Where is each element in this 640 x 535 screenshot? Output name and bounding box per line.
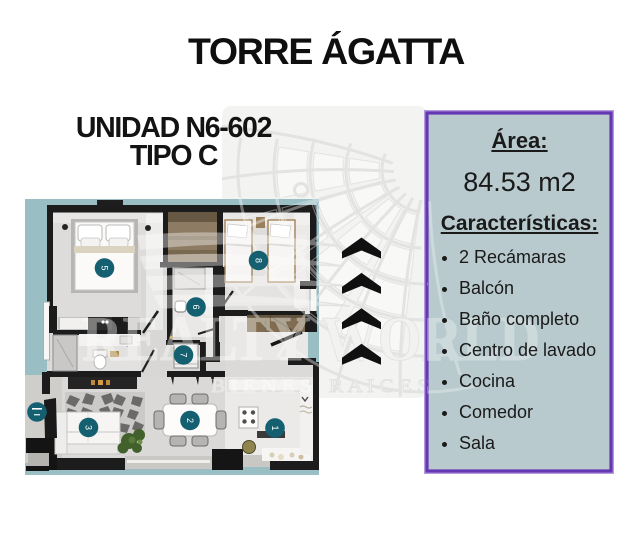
svg-text:8: 8	[254, 258, 264, 263]
svg-text:6: 6	[191, 304, 201, 309]
svg-text:7: 7	[179, 352, 189, 357]
svg-text:2: 2	[185, 418, 195, 423]
svg-text:1: 1	[270, 425, 280, 430]
svg-text:3: 3	[84, 425, 94, 430]
svg-text:5: 5	[100, 265, 110, 270]
